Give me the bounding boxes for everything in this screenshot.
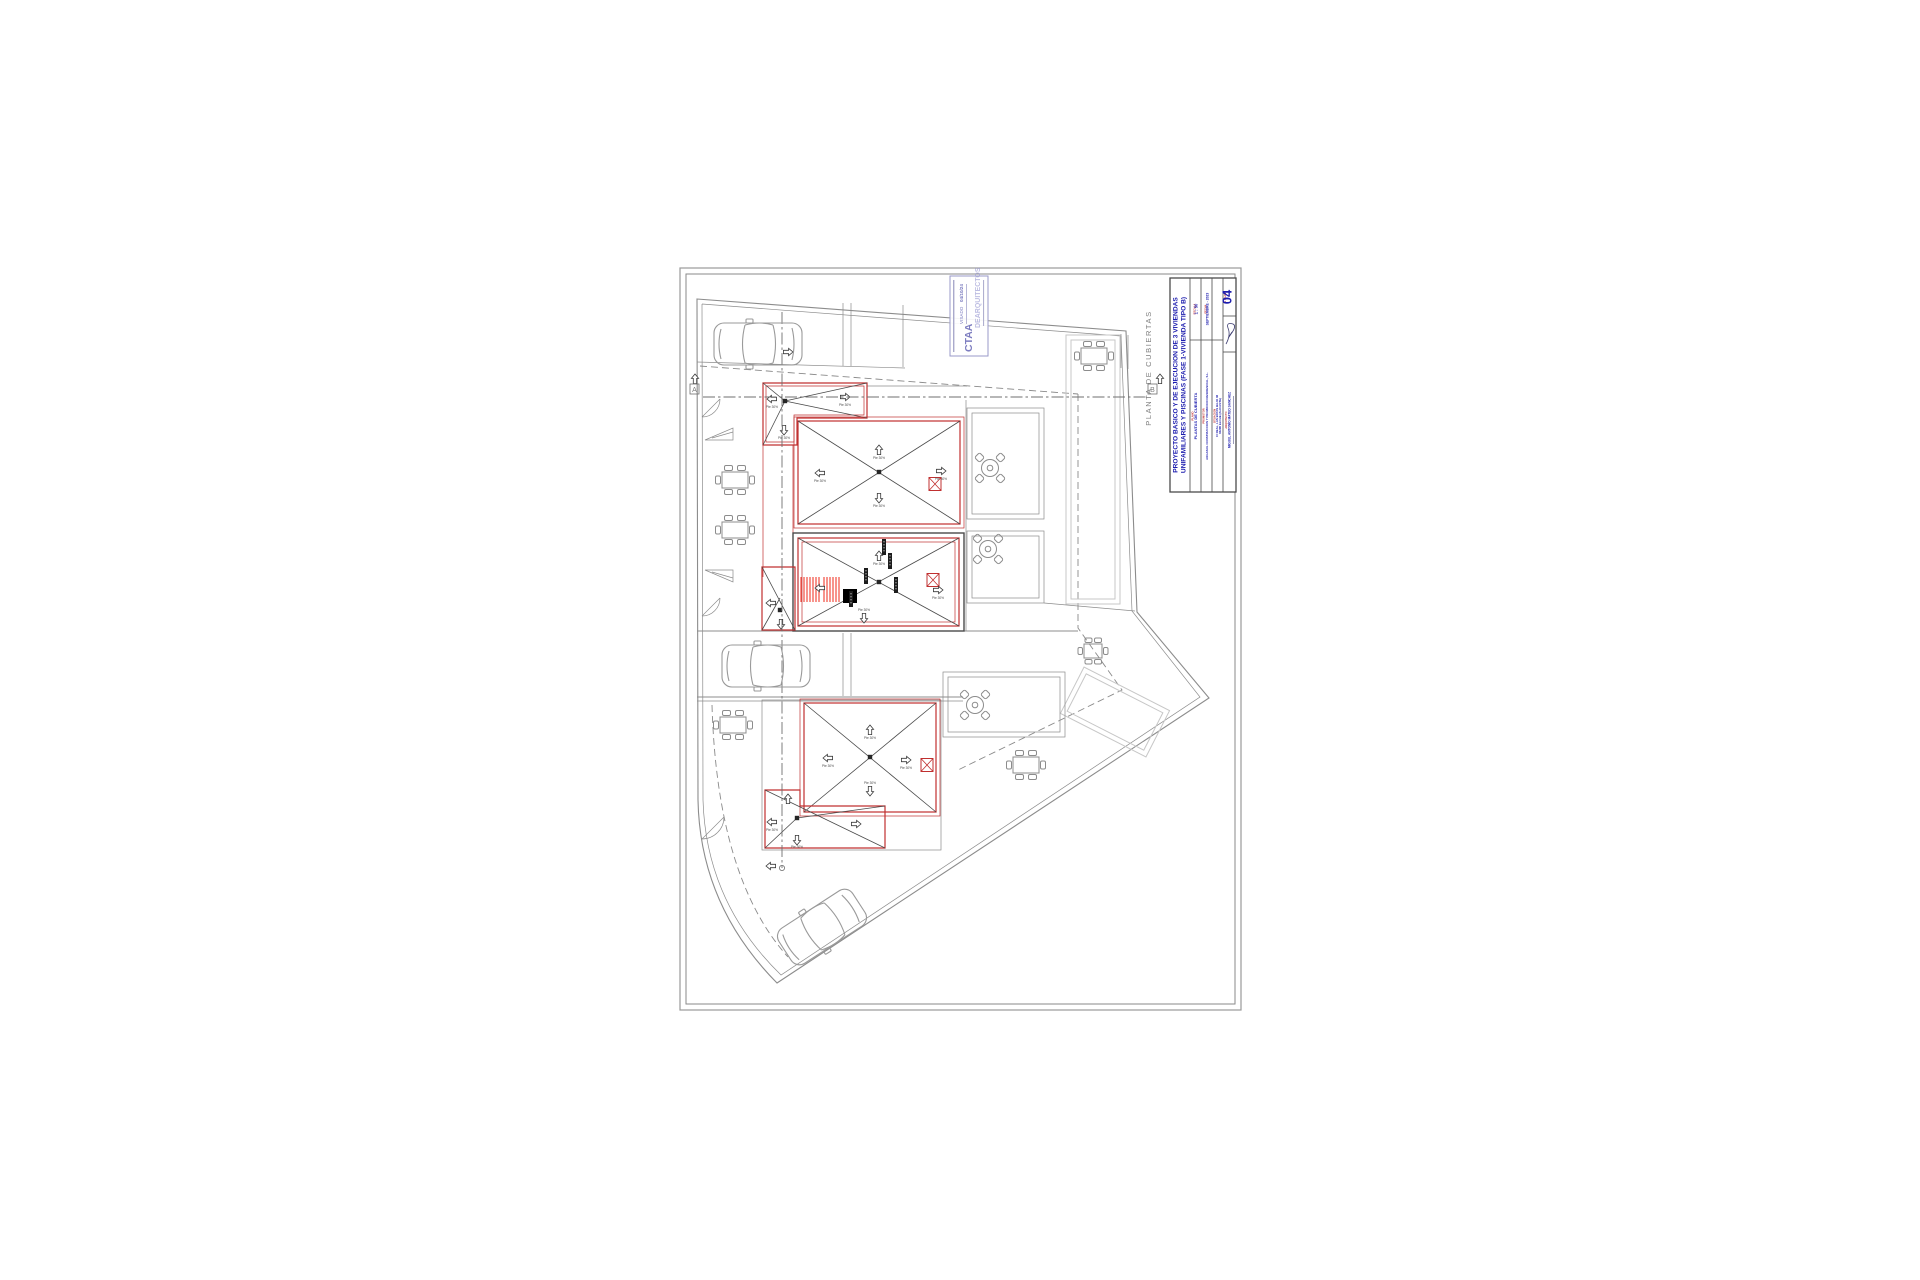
plano-value: PLANTAS DE CUBIERTA: [1193, 393, 1198, 440]
slope-label: Pte 30%: [935, 477, 947, 481]
title-block: PROYECTO BASICO Y DE EJECUCION DE 3 VIVI…: [1170, 278, 1236, 492]
micro-text-bar: [1233, 396, 1234, 444]
stamp-watermark: DEARQUITECTOS: [975, 267, 982, 328]
arquitecto-value: MIGUEL ANTONIO MATEO SANCHEZ: [1228, 392, 1232, 448]
slope-label: Pte 30%: [791, 845, 803, 849]
stamp-visado-date: 04/10/24: [959, 284, 964, 302]
project-title-line2: UNIFAMILIARES Y PISCINAS (FASE 1-VIVIEND…: [1181, 297, 1188, 473]
slope-label: Pte 30%: [778, 436, 790, 440]
drawing-page: Pte 30% Pte 30% Pte 30% Pte 30% Pte 30% …: [0, 0, 1920, 1280]
slope-label: Pte 30%: [766, 405, 778, 409]
escala-value: 1 : 50: [1194, 303, 1199, 314]
promotor-value: ARGASOL CONSTRUCCION Y PROMOCION RESIDEN…: [1205, 372, 1209, 460]
fecha-value: SEPTIEMBRE - 2023: [1206, 293, 1210, 326]
visado-stamp: CTAA VISADO 04/10/24 DEARQUITECTOS: [950, 267, 988, 356]
sheet-border: [680, 268, 1241, 1010]
slope-label: Pte 30%: [839, 403, 851, 407]
section-a-label: A: [692, 387, 697, 394]
sheet-number: 04: [1220, 289, 1235, 304]
slope-label: Pte 30%: [873, 504, 885, 508]
project-title-line1: PROYECTO BASICO Y DE EJECUCION DE 3 VIVI…: [1173, 297, 1180, 473]
stamp-visado-label: VISADO: [959, 306, 964, 324]
slope-label: Pte 30%: [814, 479, 826, 483]
slope-label: Pte 30%: [858, 608, 870, 612]
slope-label: Pte 30%: [766, 828, 778, 832]
slope-label: Pte 30%: [932, 596, 944, 600]
stamp-org: CTAA: [963, 323, 975, 352]
roof-plan-sheet: Pte 30% Pte 30% Pte 30% Pte 30% Pte 30% …: [0, 0, 1920, 1280]
slope-label: Pte 30%: [873, 562, 885, 566]
slope-label: Pte 30%: [900, 766, 912, 770]
situacion-line2: 03296 ELCHE (ALICANTE): [1218, 398, 1222, 434]
slope-label: Pte 30%: [864, 781, 876, 785]
slope-label: Pte 30%: [822, 764, 834, 768]
slope-label: Pte 30%: [873, 456, 885, 460]
slope-label: Pte 30%: [864, 736, 876, 740]
view-title: PLANTA DE CUBIERTAS: [1144, 310, 1153, 425]
